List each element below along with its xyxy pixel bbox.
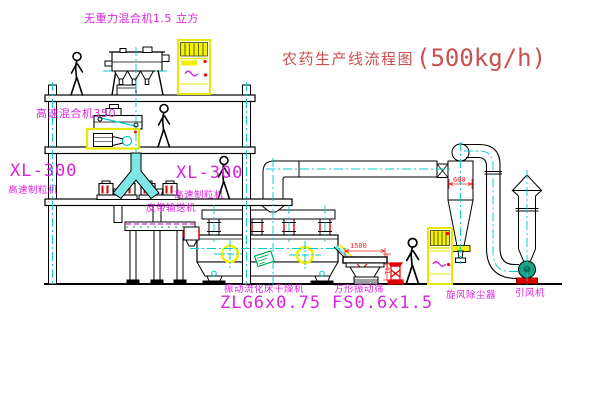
person-figure xyxy=(158,105,170,148)
label-granulator-right-name: 高速制粒机 xyxy=(174,191,224,201)
dim-screen-length: 1500 xyxy=(350,243,367,250)
page-title: 农药生产线流程图 (500kg/h) xyxy=(282,44,546,72)
label-high-speed-mixer: 高速混合机350 xyxy=(36,108,116,119)
label-induced-draft-fan: 引风机 xyxy=(515,289,545,299)
cad-flow-diagram: 农药生产线流程图 (500kg/h) 无重力混合机1.5 立方 高速混合机350… xyxy=(0,0,600,403)
label-granulator-left-name: 高速制粒机 xyxy=(8,186,58,196)
label-belt-conveyor: 皮带输送机 xyxy=(146,204,196,214)
label-granulator-left-model: XL-300 xyxy=(10,163,77,180)
label-screen-model: FS0.6x1.5 xyxy=(332,295,433,312)
person-figure xyxy=(71,53,83,96)
label-dryer-model: ZLG6x0.75 xyxy=(220,295,321,312)
title-chinese: 农药生产线流程图 xyxy=(282,48,414,69)
control-cabinet-right xyxy=(428,228,452,284)
control-cabinet-top xyxy=(178,40,210,94)
label-cyclone: 旋风除尘器 xyxy=(446,291,496,301)
person-figure xyxy=(406,239,418,284)
title-capacity: (500kg/h) xyxy=(416,44,546,72)
dim-screen-height: 541 xyxy=(383,262,390,275)
fluid-bed-dryer xyxy=(197,210,352,285)
label-gravity-mixer: 无重力混合机1.5 立方 xyxy=(84,13,199,24)
y-branch-pipe xyxy=(113,153,159,199)
belt-conveyor xyxy=(125,222,199,284)
dim-cyclone-diameter: 600 xyxy=(453,177,466,184)
label-granulator-right-model: XL-300 xyxy=(176,165,243,182)
